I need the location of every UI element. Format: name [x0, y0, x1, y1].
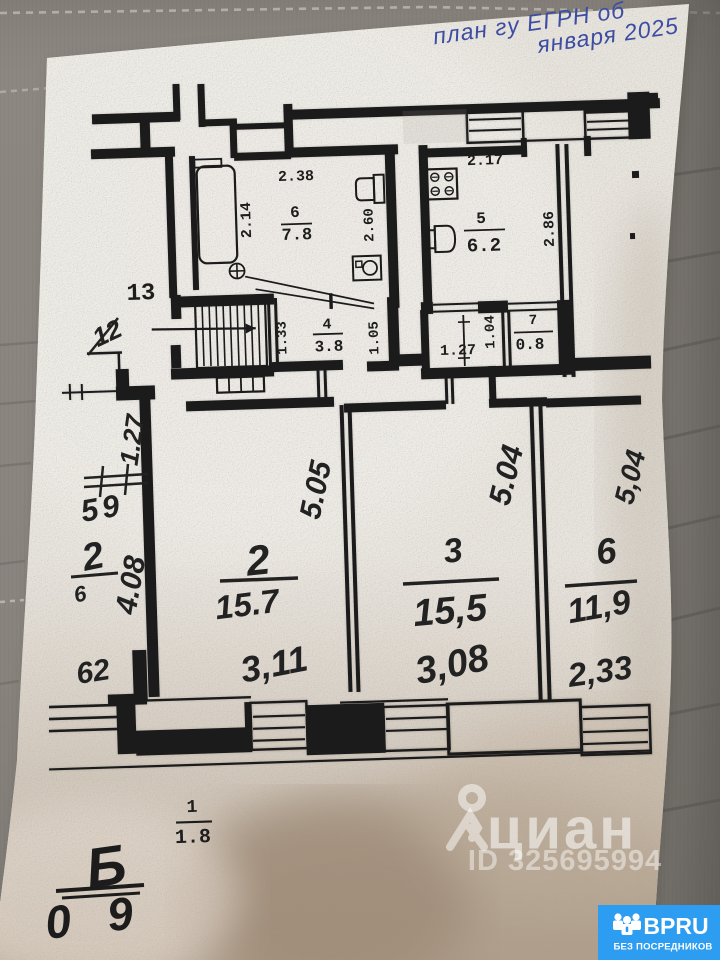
svg-text:0.8: 0.8 — [515, 336, 544, 355]
svg-text:1.05: 1.05 — [366, 321, 383, 355]
svg-text:2.86: 2.86 — [541, 211, 559, 248]
svg-text:62: 62 — [74, 653, 112, 691]
svg-text:БЕЗ ПОСРЕДНИКОВ: БЕЗ ПОСРЕДНИКОВ — [613, 942, 712, 953]
svg-text:13: 13 — [126, 280, 156, 308]
svg-text:1: 1 — [186, 798, 198, 818]
svg-text:1.04: 1.04 — [482, 315, 499, 349]
svg-text:2.60: 2.60 — [361, 208, 378, 242]
svg-text:1.27: 1.27 — [440, 342, 477, 360]
svg-text:ID 325695994: ID 325695994 — [468, 845, 662, 877]
svg-text:59: 59 — [78, 487, 126, 529]
svg-text:7.8: 7.8 — [281, 226, 312, 246]
svg-text:3.8: 3.8 — [314, 338, 343, 357]
svg-text:2.17: 2.17 — [467, 152, 504, 170]
svg-text:BPRU: BPRU — [643, 913, 708, 939]
svg-text:2.38: 2.38 — [278, 168, 315, 186]
svg-text:5: 5 — [476, 210, 486, 228]
svg-text:6.2: 6.2 — [467, 234, 502, 257]
svg-text:6: 6 — [290, 204, 300, 222]
svg-text:2.14: 2.14 — [238, 202, 256, 239]
svg-text:1.8: 1.8 — [175, 826, 212, 850]
svg-text:15,5: 15,5 — [411, 587, 489, 635]
svg-text:7: 7 — [529, 313, 538, 329]
svg-text:2: 2 — [243, 535, 272, 584]
svg-text:1.33: 1.33 — [274, 321, 291, 355]
svg-text:4: 4 — [322, 316, 332, 333]
